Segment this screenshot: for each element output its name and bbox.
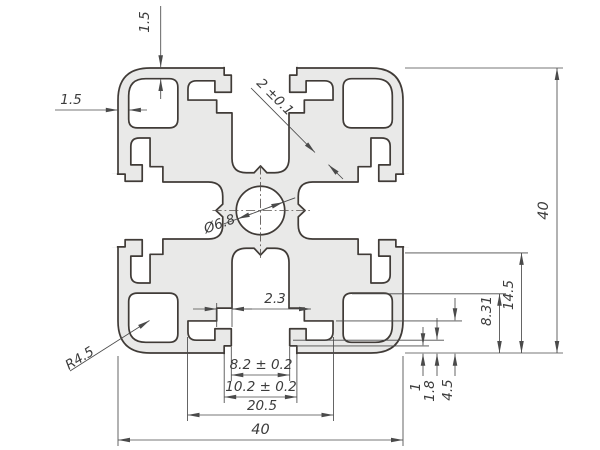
dim-label-top-wall: 1.5 [137, 11, 153, 32]
dim-label-corner-radius: R4.5 [63, 344, 98, 374]
dim-label-slot-inner: 8.2 ± 0.2 [230, 357, 293, 373]
dim-label-overall-height: 40 [536, 201, 552, 219]
dim-label-slot-feature-height: 14.5 [501, 280, 517, 310]
dim-label-slot-depth: 4.5 [440, 379, 456, 400]
dim-label-recess-depth: 1 [408, 383, 424, 392]
dim-label-slot-step: 2.3 [264, 291, 285, 307]
extrusion-profile-drawing: 40 20.5 10.2 ± 0.2 8.2 ± 0.2 2.3 40 14.5… [0, 0, 600, 450]
technical-drawing-page: 40 20.5 10.2 ± 0.2 8.2 ± 0.2 2.3 40 14.5… [0, 0, 600, 450]
dim-label-left-wall: 1.5 [60, 92, 81, 108]
dim-label-cavity-width: 20.5 [247, 398, 277, 414]
dim-label-overall-width: 40 [251, 422, 269, 438]
dim-label-chamber-height: 8.31 [479, 296, 495, 326]
dim-label-slot-opening: 10.2 ± 0.2 [225, 379, 296, 395]
dim-label-pocket-depth: 1.8 [422, 380, 438, 401]
